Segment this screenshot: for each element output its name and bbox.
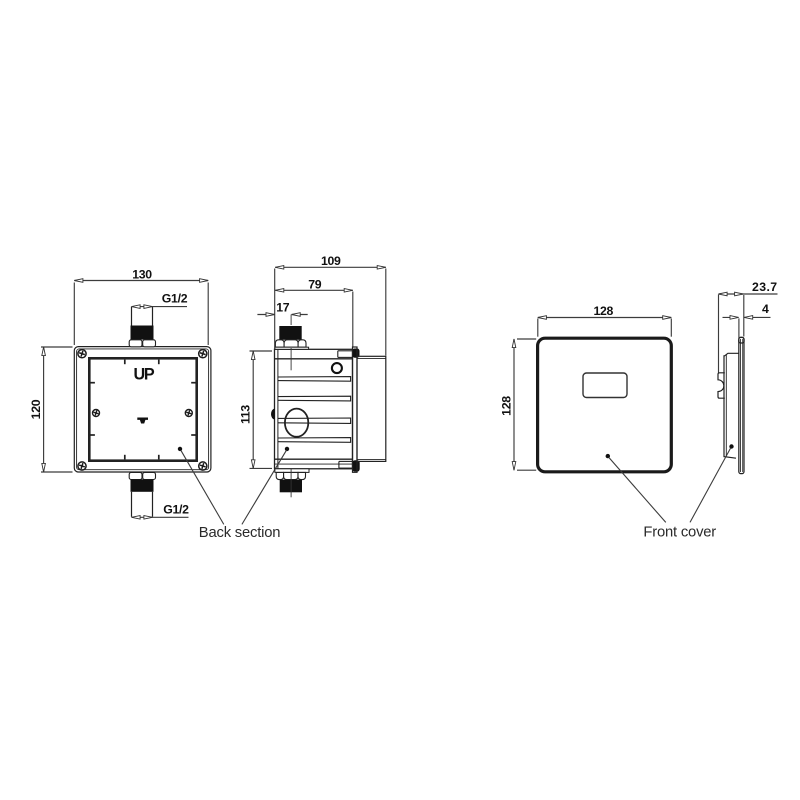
svg-text:113: 113 [239,405,253,424]
svg-text:79: 79 [308,277,322,291]
svg-text:109: 109 [321,254,341,268]
svg-text:UP: UP [134,366,155,384]
svg-text:G1/2: G1/2 [162,292,188,306]
svg-text:Back section: Back section [199,525,280,541]
svg-text:130: 130 [132,267,152,281]
svg-text:Front cover: Front cover [643,525,716,541]
svg-text:4: 4 [762,302,769,316]
svg-text:G1/2: G1/2 [163,503,189,517]
svg-text:120: 120 [29,399,43,419]
svg-text:128: 128 [593,304,613,318]
svg-text:128: 128 [500,396,514,416]
svg-text:23.7: 23.7 [752,280,778,294]
svg-text:17: 17 [276,301,290,315]
